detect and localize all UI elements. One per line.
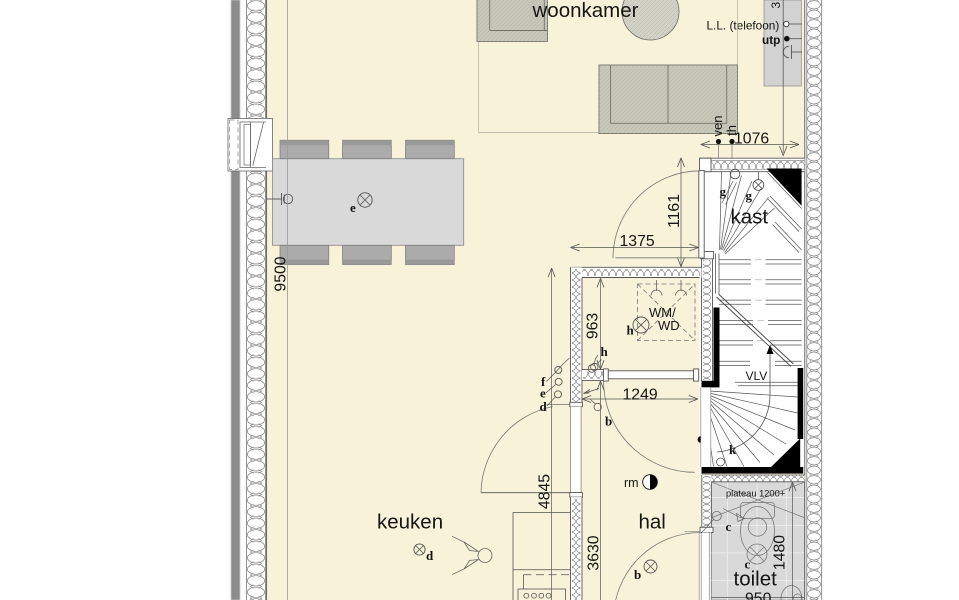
svg-text:L.L. (telefoon): L.L. (telefoon) <box>707 19 780 33</box>
svg-text:g: g <box>720 184 727 199</box>
svg-text:VLV: VLV <box>746 369 768 383</box>
svg-text:hal: hal <box>639 511 666 534</box>
svg-text:WD: WD <box>658 318 680 333</box>
svg-text:3: 3 <box>769 2 783 9</box>
svg-text:ven: ven <box>710 116 725 137</box>
svg-text:1076: 1076 <box>734 131 769 148</box>
svg-text:963: 963 <box>585 313 602 340</box>
svg-text:9500: 9500 <box>273 256 290 291</box>
svg-text:g: g <box>746 188 753 203</box>
svg-text:1480: 1480 <box>772 535 789 570</box>
svg-text:d: d <box>540 399 548 414</box>
svg-text:b: b <box>605 414 612 429</box>
svg-text:h: h <box>627 323 635 338</box>
svg-text:950: 950 <box>745 591 772 600</box>
svg-text:1161: 1161 <box>666 194 683 228</box>
svg-text:c: c <box>726 519 732 534</box>
svg-text:kast: kast <box>731 206 769 229</box>
svg-text:rm: rm <box>624 476 639 490</box>
svg-text:keuken: keuken <box>377 511 443 534</box>
svg-text:1249: 1249 <box>623 387 658 404</box>
svg-text:utp: utp <box>762 33 780 47</box>
svg-text:d: d <box>426 548 434 563</box>
svg-text:b: b <box>634 567 641 582</box>
svg-text:h: h <box>601 344 609 359</box>
svg-text:1375: 1375 <box>620 233 655 250</box>
svg-text:e: e <box>350 200 356 215</box>
svg-text:4845: 4845 <box>537 474 554 509</box>
svg-text:woonkamer: woonkamer <box>532 0 639 22</box>
svg-text:3630: 3630 <box>586 535 603 570</box>
svg-text:k: k <box>729 442 737 457</box>
svg-text:plateau 1200+: plateau 1200+ <box>726 489 785 499</box>
svg-text:toilet: toilet <box>734 568 778 591</box>
